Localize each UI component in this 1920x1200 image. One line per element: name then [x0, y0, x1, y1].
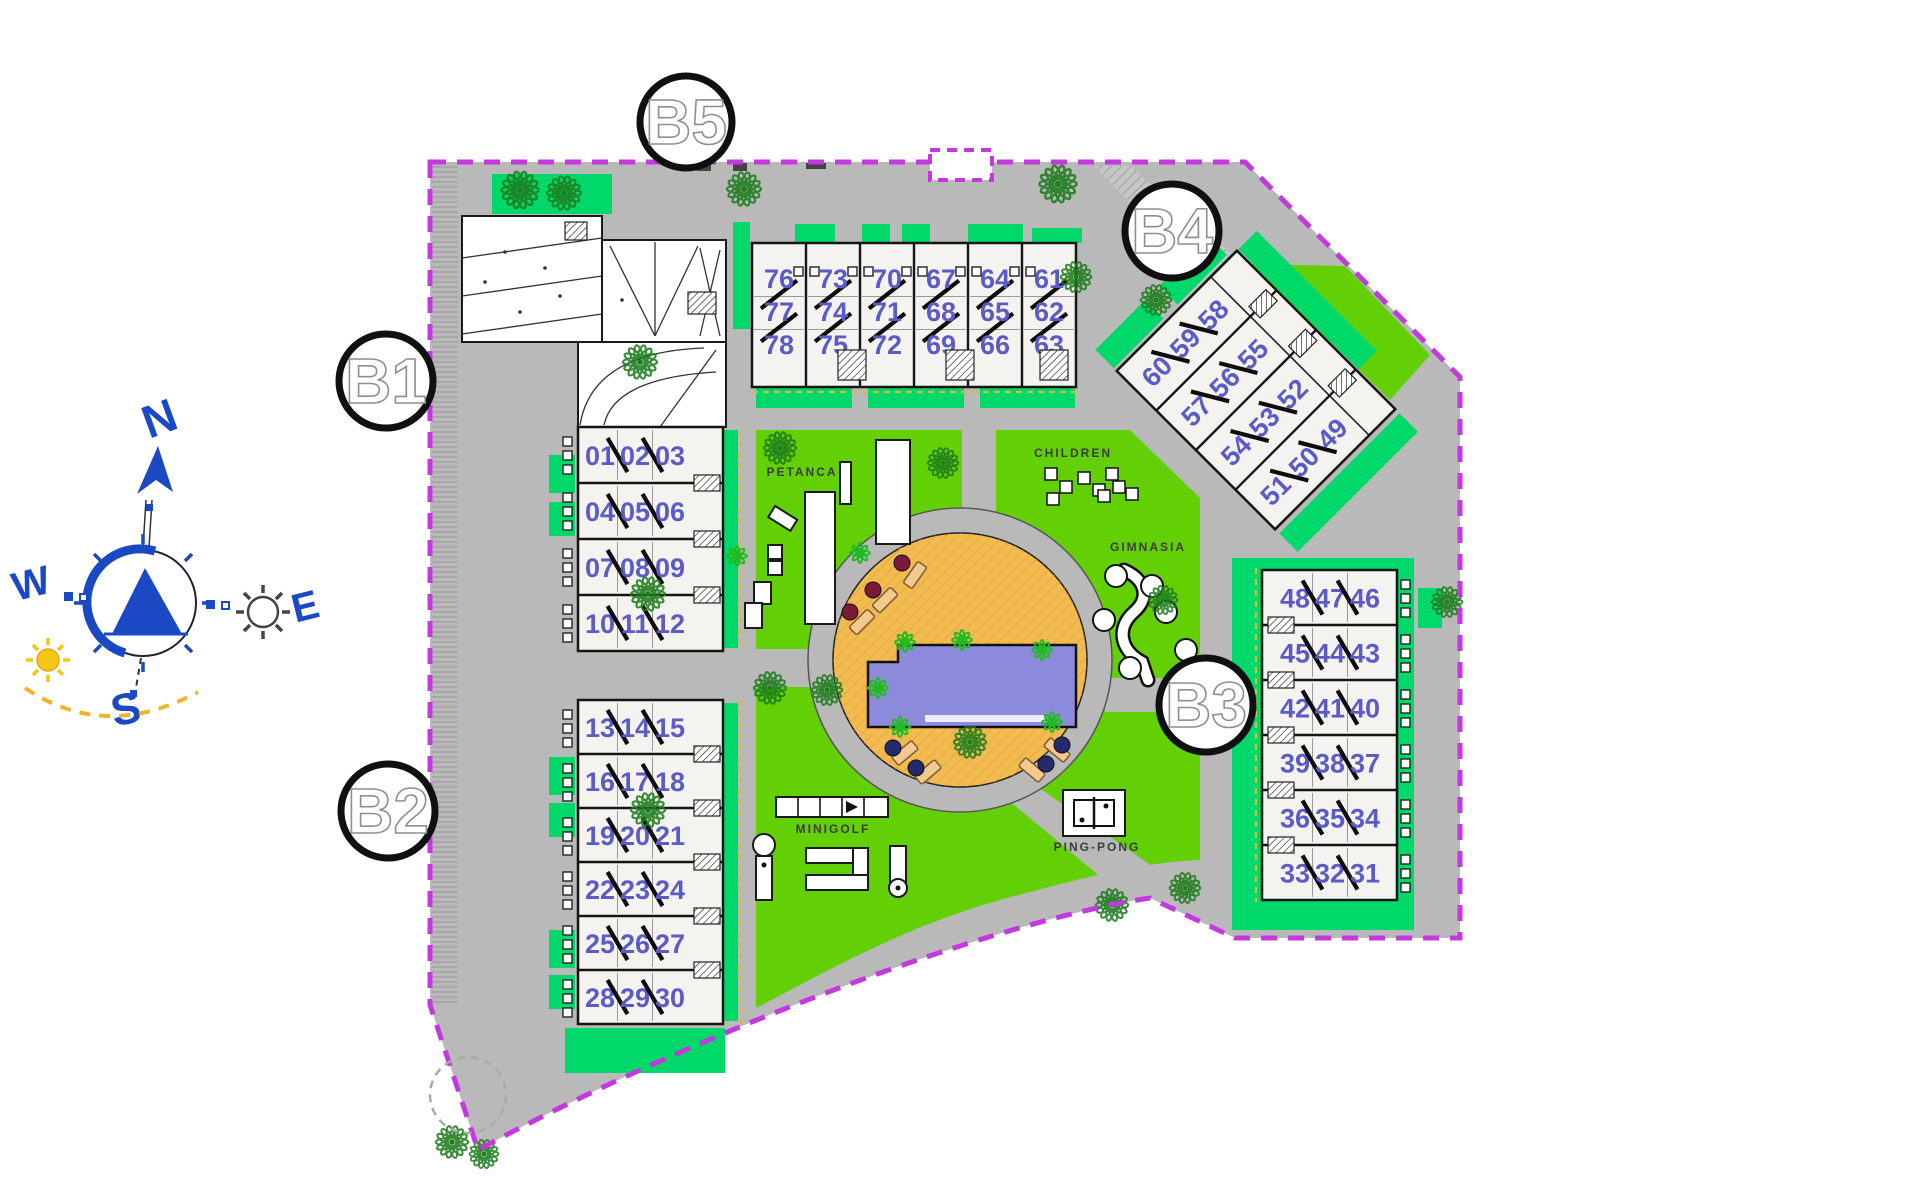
unit-number-67[interactable]: 67 [926, 264, 956, 294]
unit-number-34[interactable]: 34 [1350, 804, 1380, 834]
stairwell [1268, 837, 1294, 853]
stairwell [1268, 727, 1294, 743]
balcony [563, 563, 572, 572]
unit-number-66[interactable]: 66 [980, 330, 1010, 360]
children-label: CHILDREN [1034, 446, 1112, 460]
unit-number-65[interactable]: 65 [980, 297, 1010, 327]
play-equipment [1126, 488, 1138, 500]
balcony [1401, 594, 1410, 603]
balcony [563, 605, 572, 614]
balcony [563, 724, 572, 733]
balcony [1401, 745, 1410, 754]
balcony [1401, 718, 1410, 727]
unit-number-31[interactable]: 31 [1350, 859, 1380, 889]
stairwell [694, 746, 720, 762]
boundary-notch [930, 150, 992, 180]
gimnasia-label: GIMNASIA [1110, 540, 1186, 554]
unit-number-27[interactable]: 27 [655, 929, 685, 959]
balcony [1401, 635, 1410, 644]
balcony [563, 886, 572, 895]
unit-number-03[interactable]: 03 [655, 441, 685, 471]
balcony [563, 507, 572, 516]
badge-b3-label: B3 [1165, 669, 1247, 741]
parasol-icon [1054, 737, 1070, 753]
unit-number-43[interactable]: 43 [1350, 639, 1380, 669]
stairwell [694, 854, 720, 870]
pool-area [808, 508, 1112, 812]
badge-b4-label: B4 [1131, 195, 1213, 267]
balcony [563, 764, 572, 773]
balcony [563, 954, 572, 963]
balcony [563, 832, 572, 841]
pool-lane [925, 715, 1045, 722]
balcony [563, 710, 572, 719]
unit-number-64[interactable]: 64 [980, 264, 1010, 294]
site-plan: 767778737475707172676869646566616263 010… [0, 0, 1920, 1200]
compass-east-label: E [287, 582, 324, 631]
play-equipment [1098, 490, 1110, 502]
stairwell [694, 800, 720, 816]
balcony [563, 738, 572, 747]
badge-b4[interactable]: B4 [1125, 184, 1219, 278]
dormer [902, 267, 911, 276]
play-equipment [1106, 468, 1118, 480]
balcony [1401, 855, 1410, 864]
balcony [1401, 649, 1410, 658]
unit-number-21[interactable]: 21 [655, 821, 685, 851]
balcony [1401, 759, 1410, 768]
unit-number-77[interactable]: 77 [764, 297, 794, 327]
balcony [1401, 773, 1410, 782]
play-equipment [1060, 481, 1072, 493]
parasol-icon [908, 760, 924, 776]
balcony [1401, 800, 1410, 809]
building-b1[interactable]: 010203040506070809101112 [563, 427, 723, 651]
north-arrow-icon [137, 446, 173, 494]
badge-b3[interactable]: B3 [1159, 658, 1253, 752]
balcony [1401, 814, 1410, 823]
badge-b1[interactable]: B1 [339, 334, 433, 428]
balcony [563, 792, 572, 801]
unit-number-18[interactable]: 18 [655, 767, 685, 797]
balcony [563, 940, 572, 949]
balcony [563, 872, 572, 881]
badge-b2-label: B2 [347, 775, 429, 847]
dormer [848, 267, 857, 276]
balcony [563, 980, 572, 989]
dormer [794, 267, 803, 276]
balcony [563, 846, 572, 855]
balcony [563, 451, 572, 460]
balcony [563, 465, 572, 474]
compass-south-label: S [106, 682, 145, 736]
unit-number-40[interactable]: 40 [1350, 694, 1380, 724]
petanca-label: PETANCA [766, 465, 837, 479]
building-b5[interactable]: 767778737475707172676869646566616263 [752, 243, 1076, 387]
balcony [563, 633, 572, 642]
unit-number-71[interactable]: 71 [872, 297, 902, 327]
balcony [563, 549, 572, 558]
unit-number-61[interactable]: 61 [1034, 264, 1064, 294]
unit-number-74[interactable]: 74 [818, 297, 848, 327]
parasol-icon [885, 740, 901, 756]
play-equipment [1047, 493, 1059, 505]
stairwell [694, 587, 720, 603]
balcony [1401, 690, 1410, 699]
balcony [1401, 828, 1410, 837]
play-equipment [1045, 468, 1057, 480]
balcony [1401, 580, 1410, 589]
balcony [563, 437, 572, 446]
unit-number-76[interactable]: 76 [764, 264, 794, 294]
balcony [1401, 608, 1410, 617]
play-equipment [1078, 472, 1090, 484]
stairwell [838, 350, 866, 380]
parasol-icon [865, 582, 881, 598]
unit-number-30[interactable]: 30 [655, 983, 685, 1013]
badge-b2[interactable]: B2 [341, 764, 435, 858]
roadside-ramp [432, 164, 458, 1004]
stairwell [1268, 672, 1294, 688]
stairwell [694, 475, 720, 491]
balcony [1401, 663, 1410, 672]
sun-yellow-icon [26, 638, 70, 682]
unit-number-12[interactable]: 12 [655, 609, 685, 639]
balcony [563, 926, 572, 935]
dormer [956, 267, 965, 276]
unit-number-09[interactable]: 09 [655, 553, 685, 583]
gym-equipment [1093, 609, 1115, 631]
unit-number-68[interactable]: 68 [926, 297, 956, 327]
building-b2[interactable]: 131415161718192021222324252627282930 [563, 700, 723, 1024]
badge-b1-label: B1 [345, 345, 427, 417]
stairwell [694, 962, 720, 978]
badge-b5-label: B5 [645, 86, 727, 158]
balcony [563, 818, 572, 827]
building-b3[interactable]: 484746454443424140393837363534333231 [1262, 570, 1410, 900]
balcony [1401, 704, 1410, 713]
compass-west-label: W [8, 558, 56, 610]
unit-number-15[interactable]: 15 [655, 713, 685, 743]
unit-number-24[interactable]: 24 [655, 875, 685, 905]
unit-number-37[interactable]: 37 [1350, 749, 1380, 779]
play-equipment [1113, 481, 1125, 493]
unit-number-78[interactable]: 78 [764, 330, 794, 360]
site-plan-canvas: 767778737475707172676869646566616263 010… [0, 0, 1920, 1200]
dormer [1010, 267, 1019, 276]
balcony [1401, 869, 1410, 878]
minigolf-label: MINIGOLF [796, 822, 871, 836]
balcony [563, 619, 572, 628]
stairwell [1268, 617, 1294, 633]
stairwell [694, 908, 720, 924]
balcony [563, 493, 572, 502]
parasol-icon [894, 555, 910, 571]
stairwell [1040, 350, 1068, 380]
unit-number-70[interactable]: 70 [872, 264, 902, 294]
stairwell [694, 531, 720, 547]
compass-north-label: N [135, 388, 184, 448]
parasol-icon [842, 604, 858, 620]
gym-equipment [1119, 657, 1141, 679]
balcony [563, 994, 572, 1003]
balcony [1401, 883, 1410, 892]
balcony [563, 778, 572, 787]
stairwell [946, 350, 974, 380]
compass-rose: N W E S [8, 388, 324, 737]
unit-number-06[interactable]: 06 [655, 497, 685, 527]
sun-east-icon [236, 585, 290, 639]
unit-number-73[interactable]: 73 [818, 264, 848, 294]
stairwell [1268, 782, 1294, 798]
balcony [563, 1008, 572, 1017]
gym-equipment [1105, 565, 1127, 587]
unit-number-62[interactable]: 62 [1034, 297, 1064, 327]
ping-pong-label: PING-PONG [1054, 840, 1141, 854]
badge-b5[interactable]: B5 [640, 76, 732, 168]
ping-pong-area [1063, 790, 1125, 836]
unit-number-46[interactable]: 46 [1350, 584, 1380, 614]
balcony [563, 577, 572, 586]
unit-number-72[interactable]: 72 [872, 330, 902, 360]
parasol-icon [1038, 756, 1054, 772]
balcony [563, 900, 572, 909]
balcony [563, 521, 572, 530]
